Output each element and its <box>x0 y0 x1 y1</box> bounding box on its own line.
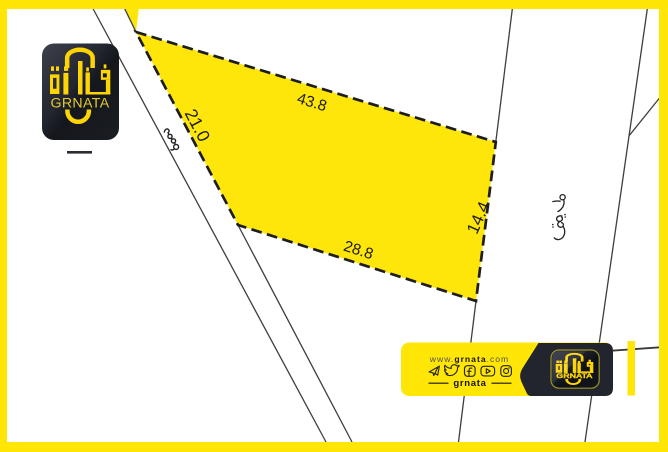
svg-text:www.grnata.com: www.grnata.com <box>429 354 509 364</box>
svg-text:grnata: grnata <box>453 378 486 389</box>
